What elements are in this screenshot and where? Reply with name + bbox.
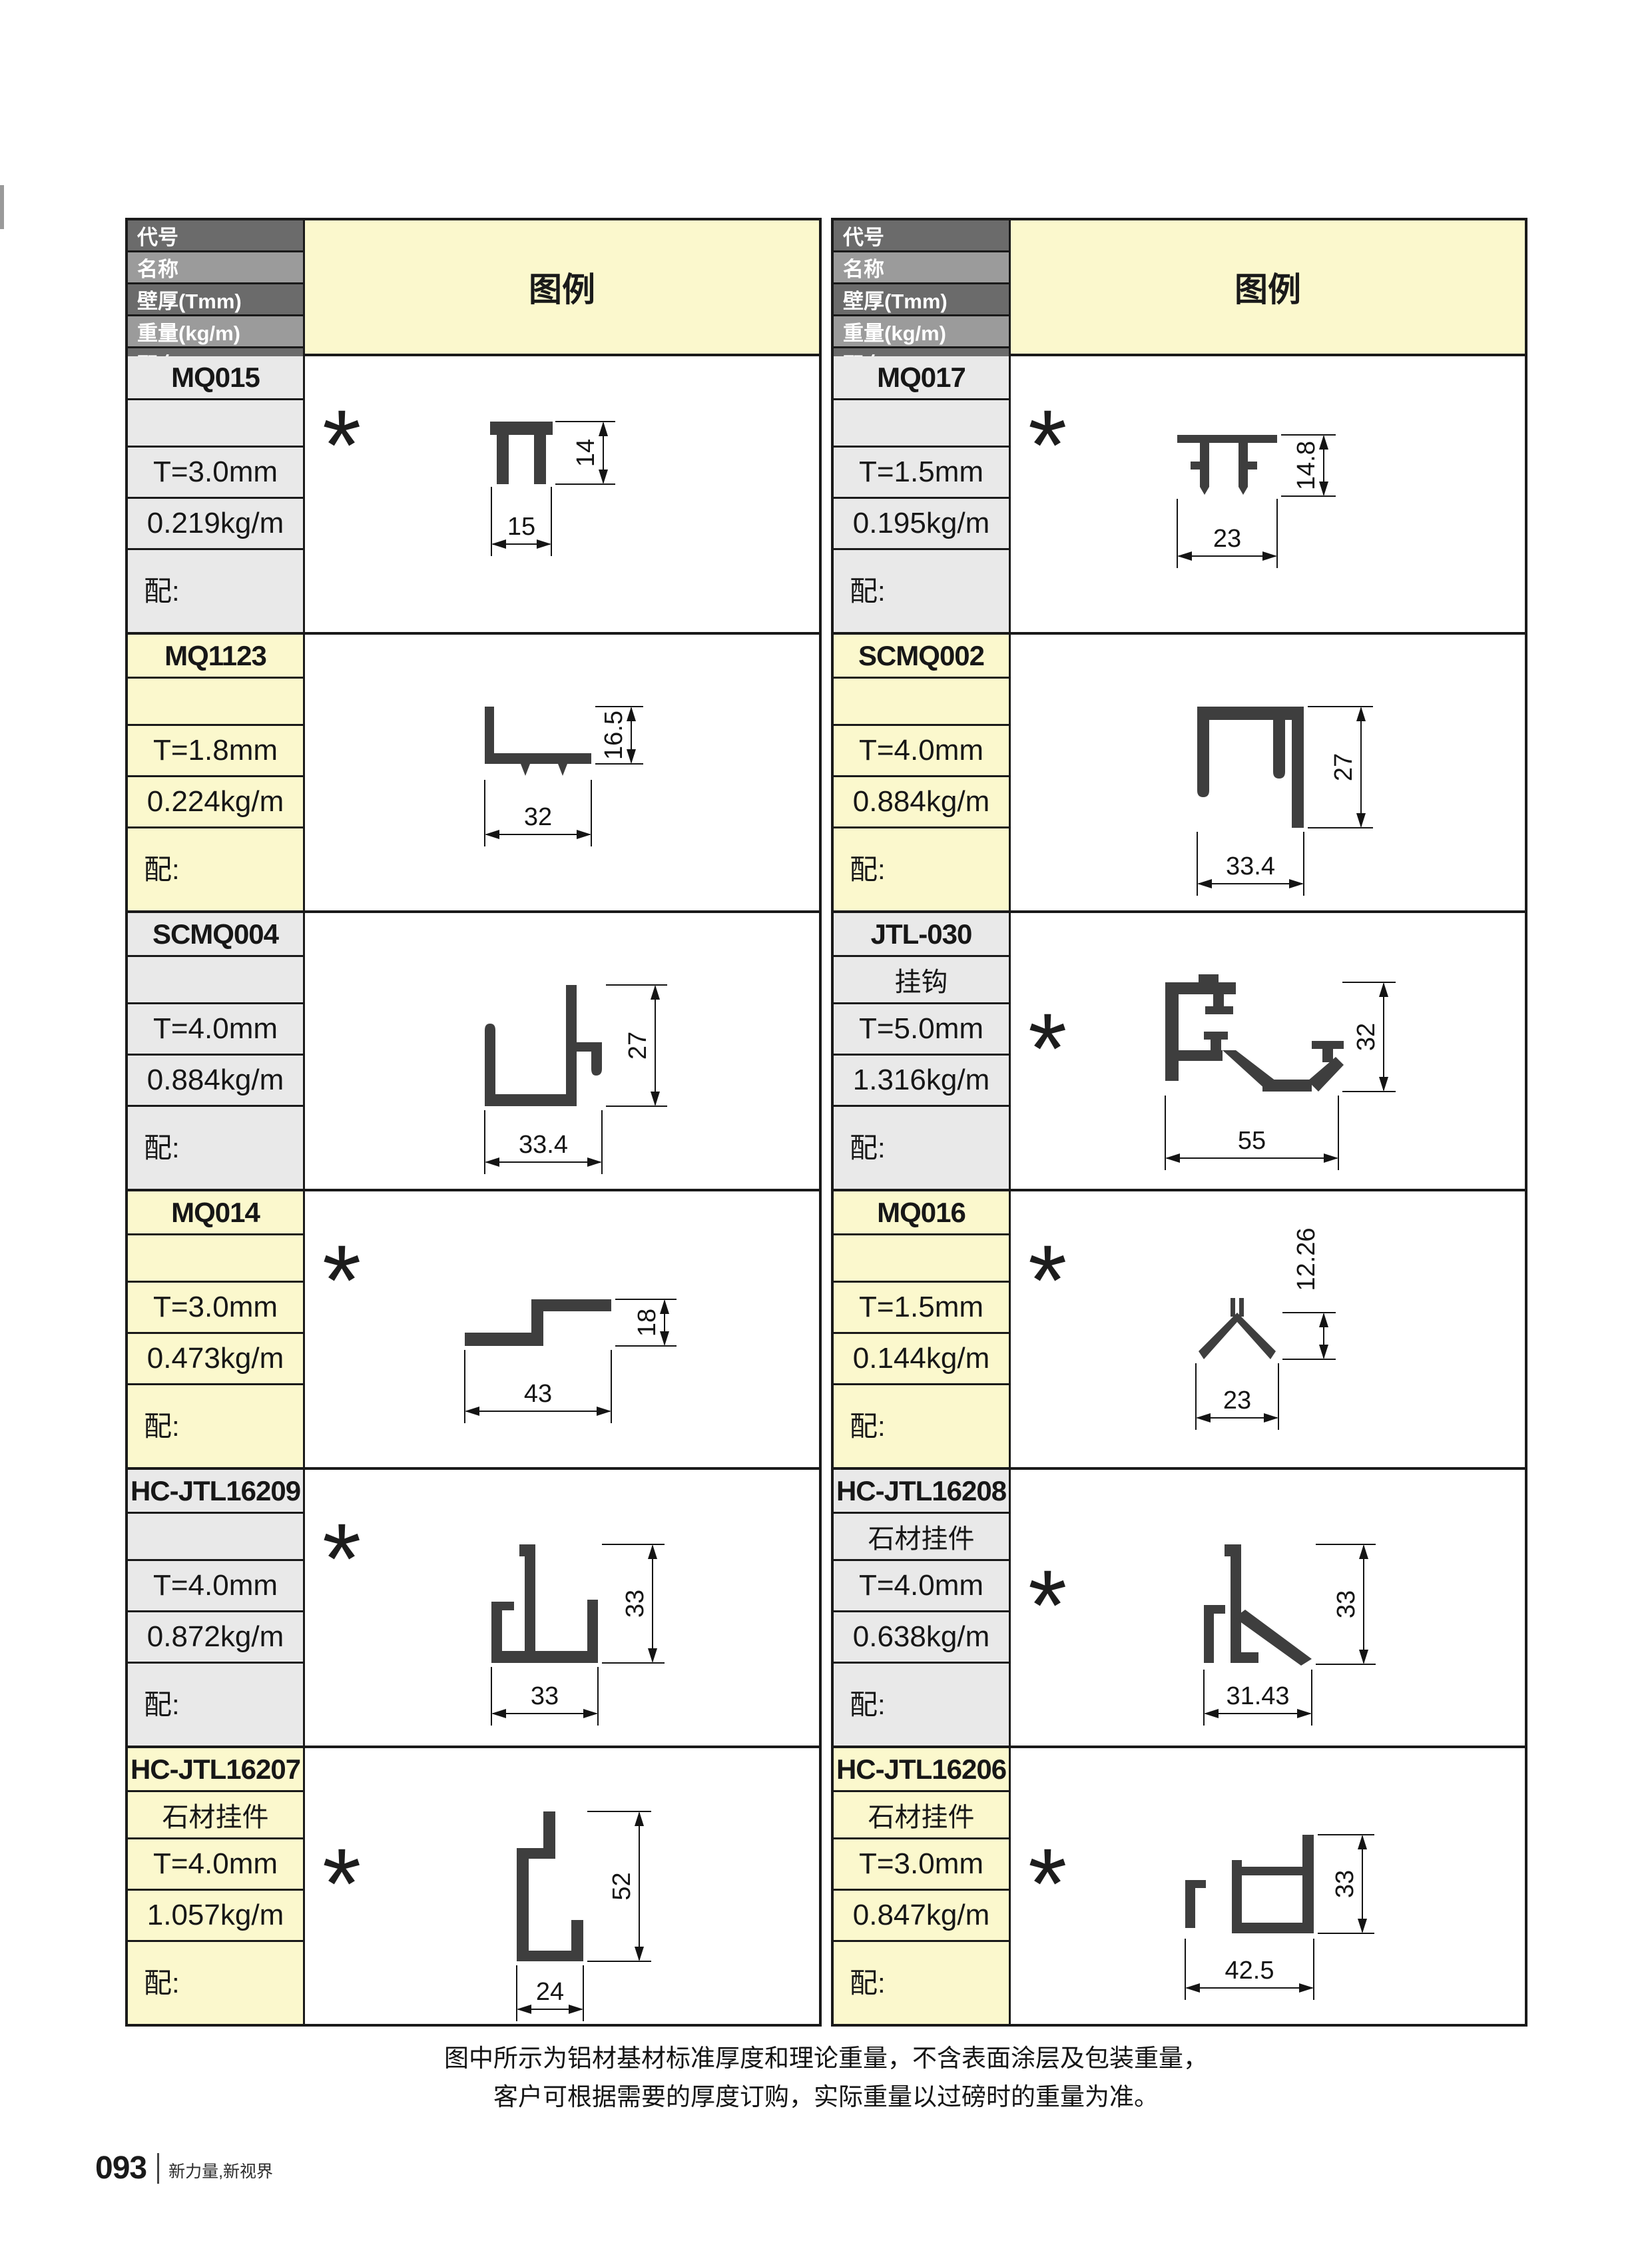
dim-height-label: 14 [572, 439, 600, 467]
dim-width-label: 24 [536, 1978, 564, 2006]
profile-diagram-area: *4318 [305, 1191, 819, 1467]
header-label-1: 代号 [128, 220, 303, 252]
profile-drawing: 2452 [305, 1748, 817, 2024]
card-label-column: JTL-030挂钩T=5.0mm1.316kg/m配: [834, 913, 1011, 1189]
profile-name: 石材挂件 [834, 1792, 1009, 1839]
profile-card: HC-JTL16208石材挂件T=4.0mm0.638kg/m配:*31.433… [834, 1467, 1525, 1746]
dim-height-label: 14.8 [1292, 441, 1320, 490]
table-header: 代号名称壁厚(Tmm)重量(kg/m)配套图例 [834, 220, 1525, 354]
profile-code: MQ016 [834, 1191, 1009, 1235]
legend-header-cell: 图例 [1011, 220, 1525, 354]
header-label-1: 代号 [834, 220, 1009, 252]
profile-fit: 配: [128, 828, 303, 910]
profile-code: HC-JTL16207 [128, 1748, 303, 1792]
profile-card: SCMQ004T=4.0mm0.884kg/m配:33.427 [128, 910, 819, 1189]
dim-height-label: 32 [1352, 1023, 1380, 1051]
profile-code: HC-JTL16208 [834, 1470, 1009, 1514]
left-edge-mark [0, 185, 4, 229]
profile-code: MQ017 [834, 356, 1009, 400]
profile-thickness: T=5.0mm [834, 1004, 1009, 1056]
profile-weight: 0.847kg/m [834, 1891, 1009, 1942]
dim-height-label: 27 [624, 1032, 652, 1060]
dim-height-label: 33 [1332, 1590, 1360, 1618]
profile-weight: 0.872kg/m [128, 1612, 303, 1664]
card-label-column: MQ014T=3.0mm0.473kg/m配: [128, 1191, 305, 1467]
profile-weight: 0.884kg/m [834, 777, 1009, 828]
profile-name [128, 1514, 303, 1561]
profile-name [128, 679, 303, 726]
page-number: 093 [95, 2150, 146, 2186]
profile-code: MQ015 [128, 356, 303, 400]
dim-width-label: 43 [524, 1380, 552, 1408]
header-label-3: 壁厚(Tmm) [834, 284, 1009, 316]
table-header-labels: 代号名称壁厚(Tmm)重量(kg/m)配套 [834, 220, 1011, 354]
profile-diagram-area: *3333 [305, 1470, 819, 1746]
profile-thickness: T=1.5mm [834, 1283, 1009, 1334]
profile-thickness: T=3.0mm [834, 1839, 1009, 1891]
header-label-2: 名称 [834, 252, 1009, 284]
profile-drawing: 2312.26 [1011, 1191, 1523, 1467]
profile-diagram-area: *2312.26 [1011, 1191, 1525, 1467]
catalog-page: 代号名称壁厚(Tmm)重量(kg/m)配套图例MQ015T=3.0mm0.219… [0, 0, 1652, 2241]
dim-width-label: 33.4 [519, 1131, 568, 1159]
card-label-column: HC-JTL16206石材挂件T=3.0mm0.847kg/m配: [834, 1748, 1011, 2024]
profile-drawing: 4318 [305, 1191, 817, 1467]
table-header: 代号名称壁厚(Tmm)重量(kg/m)配套图例 [128, 220, 819, 354]
profile-card: HC-JTL16209T=4.0mm0.872kg/m配:*3333 [128, 1467, 819, 1746]
profile-name: 挂钩 [834, 957, 1009, 1004]
profile-fit: 配: [128, 1942, 303, 2024]
profile-code: MQ014 [128, 1191, 303, 1235]
profile-diagram-area: 33.427 [305, 913, 819, 1189]
profile-card: SCMQ002T=4.0mm0.884kg/m配:33.427 [834, 632, 1525, 910]
footnote: 图中所示为铝材基材标准厚度和理论重量，不含表面涂层及包装重量， 客户可根据需要的… [0, 2039, 1652, 2116]
dim-height-label: 27 [1330, 753, 1358, 781]
dim-height-label: 16.5 [600, 711, 628, 760]
profile-card: MQ1123T=1.8mm0.224kg/m配:3216.5 [128, 632, 819, 910]
profile-fit: 配: [128, 550, 303, 632]
dim-height-label: 52 [608, 1872, 636, 1900]
profile-code: SCMQ004 [128, 913, 303, 957]
profile-fit: 配: [128, 1664, 303, 1746]
card-label-column: SCMQ004T=4.0mm0.884kg/m配: [128, 913, 305, 1189]
card-label-column: HC-JTL16209T=4.0mm0.872kg/m配: [128, 1470, 305, 1746]
profile-fit: 配: [834, 1107, 1009, 1189]
card-label-column: MQ015T=3.0mm0.219kg/m配: [128, 356, 305, 632]
profile-weight: 0.884kg/m [128, 1056, 303, 1107]
profile-card: MQ016T=1.5mm0.144kg/m配:*2312.26 [834, 1189, 1525, 1467]
profile-weight: 1.316kg/m [834, 1056, 1009, 1107]
profile-thickness: T=4.0mm [128, 1839, 303, 1891]
profile-name: 石材挂件 [128, 1792, 303, 1839]
profile-code: JTL-030 [834, 913, 1009, 957]
profile-name [834, 1235, 1009, 1283]
profile-name [128, 1235, 303, 1283]
profile-weight: 1.057kg/m [128, 1891, 303, 1942]
dim-height-label: 18 [633, 1309, 661, 1337]
profile-thickness: T=4.0mm [128, 1561, 303, 1612]
profile-thickness: T=1.8mm [128, 726, 303, 777]
profile-drawing: 31.4333 [1011, 1470, 1523, 1746]
profile-code: HC-JTL16209 [128, 1470, 303, 1514]
profile-drawing: 3216.5 [305, 635, 817, 910]
footnote-line-1: 图中所示为铝材基材标准厚度和理论重量，不含表面涂层及包装重量， [0, 2039, 1652, 2078]
profile-diagram-area: *42.533 [1011, 1748, 1525, 2024]
profile-card: HC-JTL16206石材挂件T=3.0mm0.847kg/m配:*42.533 [834, 1746, 1525, 2024]
dim-width-label: 15 [507, 513, 535, 541]
footer-divider [157, 2153, 159, 2184]
dim-width-label: 23 [1213, 525, 1241, 553]
legend-header-cell: 图例 [305, 220, 819, 354]
profile-diagram-area: *2452 [305, 1748, 819, 2024]
profile-drawing: 42.533 [1011, 1748, 1523, 2024]
table-header-labels: 代号名称壁厚(Tmm)重量(kg/m)配套 [128, 220, 305, 354]
profile-thickness: T=3.0mm [128, 1283, 303, 1334]
profile-drawing: 33.427 [1011, 635, 1523, 910]
profile-card: HC-JTL16207石材挂件T=4.0mm1.057kg/m配:*2452 [128, 1746, 819, 2024]
profile-fit: 配: [128, 1385, 303, 1467]
profile-weight: 0.638kg/m [834, 1612, 1009, 1664]
profile-drawing: 5532 [1011, 913, 1523, 1189]
profile-diagram-area: *5532 [1011, 913, 1525, 1189]
profile-name: 石材挂件 [834, 1514, 1009, 1561]
card-label-column: HC-JTL16208石材挂件T=4.0mm0.638kg/m配: [834, 1470, 1011, 1746]
footer-tagline: 新力量,新视界 [168, 2154, 273, 2182]
profile-fit: 配: [128, 1107, 303, 1189]
profile-thickness: T=3.0mm [128, 448, 303, 499]
profile-thickness: T=4.0mm [128, 1004, 303, 1056]
profile-drawing: 3333 [305, 1470, 817, 1746]
header-label-2: 名称 [128, 252, 303, 284]
dim-width-label: 32 [524, 803, 552, 831]
profile-card: JTL-030挂钩T=5.0mm1.316kg/m配:*5532 [834, 910, 1525, 1189]
profile-weight: 0.144kg/m [834, 1334, 1009, 1385]
dim-height-label: 33 [621, 1590, 649, 1618]
dim-height-label: 12.26 [1292, 1227, 1320, 1291]
profile-weight: 0.195kg/m [834, 499, 1009, 550]
dim-width-label: 33.4 [1226, 852, 1275, 880]
header-label-4: 重量(kg/m) [128, 316, 303, 348]
dim-width-label: 23 [1223, 1387, 1251, 1415]
profile-code: MQ1123 [128, 635, 303, 679]
profile-thickness: T=1.5mm [834, 448, 1009, 499]
card-label-column: SCMQ002T=4.0mm0.884kg/m配: [834, 635, 1011, 910]
profile-diagram-area: *31.4333 [1011, 1470, 1525, 1746]
profile-weight: 0.473kg/m [128, 1334, 303, 1385]
profile-drawing: 2314.8 [1011, 356, 1523, 632]
profile-table-left: 代号名称壁厚(Tmm)重量(kg/m)配套图例MQ015T=3.0mm0.219… [125, 218, 822, 2027]
profile-name [128, 400, 303, 448]
dim-width-label: 55 [1238, 1127, 1266, 1155]
profile-card: MQ014T=3.0mm0.473kg/m配:*4318 [128, 1189, 819, 1467]
dim-height-label: 33 [1331, 1870, 1359, 1898]
dim-width-label: 42.5 [1225, 1957, 1274, 1985]
profile-fit: 配: [834, 1942, 1009, 2024]
card-label-column: MQ017T=1.5mm0.195kg/m配: [834, 356, 1011, 632]
profile-diagram-area: 3216.5 [305, 635, 819, 910]
profile-fit: 配: [834, 550, 1009, 632]
card-label-column: MQ016T=1.5mm0.144kg/m配: [834, 1191, 1011, 1467]
profile-drawing: 1514 [305, 356, 817, 632]
dim-width-label: 33 [531, 1682, 559, 1710]
profile-fit: 配: [834, 828, 1009, 910]
profile-diagram-area: *2314.8 [1011, 356, 1525, 632]
profile-weight: 0.219kg/m [128, 499, 303, 550]
profile-code: SCMQ002 [834, 635, 1009, 679]
header-label-3: 壁厚(Tmm) [128, 284, 303, 316]
profile-name [128, 957, 303, 1004]
card-label-column: HC-JTL16207石材挂件T=4.0mm1.057kg/m配: [128, 1748, 305, 2024]
profile-name [834, 400, 1009, 448]
dim-width-label: 31.43 [1226, 1682, 1289, 1710]
profile-card: MQ017T=1.5mm0.195kg/m配:*2314.8 [834, 354, 1525, 632]
profile-fit: 配: [834, 1664, 1009, 1746]
profile-diagram-area: 33.427 [1011, 635, 1525, 910]
profile-weight: 0.224kg/m [128, 777, 303, 828]
card-label-column: MQ1123T=1.8mm0.224kg/m配: [128, 635, 305, 910]
profile-fit: 配: [834, 1385, 1009, 1467]
profile-name [834, 679, 1009, 726]
profile-drawing: 33.427 [305, 913, 817, 1189]
profile-diagram-area: *1514 [305, 356, 819, 632]
profile-card: MQ015T=3.0mm0.219kg/m配:*1514 [128, 354, 819, 632]
profile-thickness: T=4.0mm [834, 726, 1009, 777]
page-footer: 093 新力量,新视界 [95, 2150, 273, 2186]
profile-code: HC-JTL16206 [834, 1748, 1009, 1792]
profile-table-right: 代号名称壁厚(Tmm)重量(kg/m)配套图例MQ017T=1.5mm0.195… [831, 218, 1527, 2027]
profile-thickness: T=4.0mm [834, 1561, 1009, 1612]
header-label-4: 重量(kg/m) [834, 316, 1009, 348]
footnote-line-2: 客户可根据需要的厚度订购，实际重量以过磅时的重量为准。 [0, 2078, 1652, 2116]
